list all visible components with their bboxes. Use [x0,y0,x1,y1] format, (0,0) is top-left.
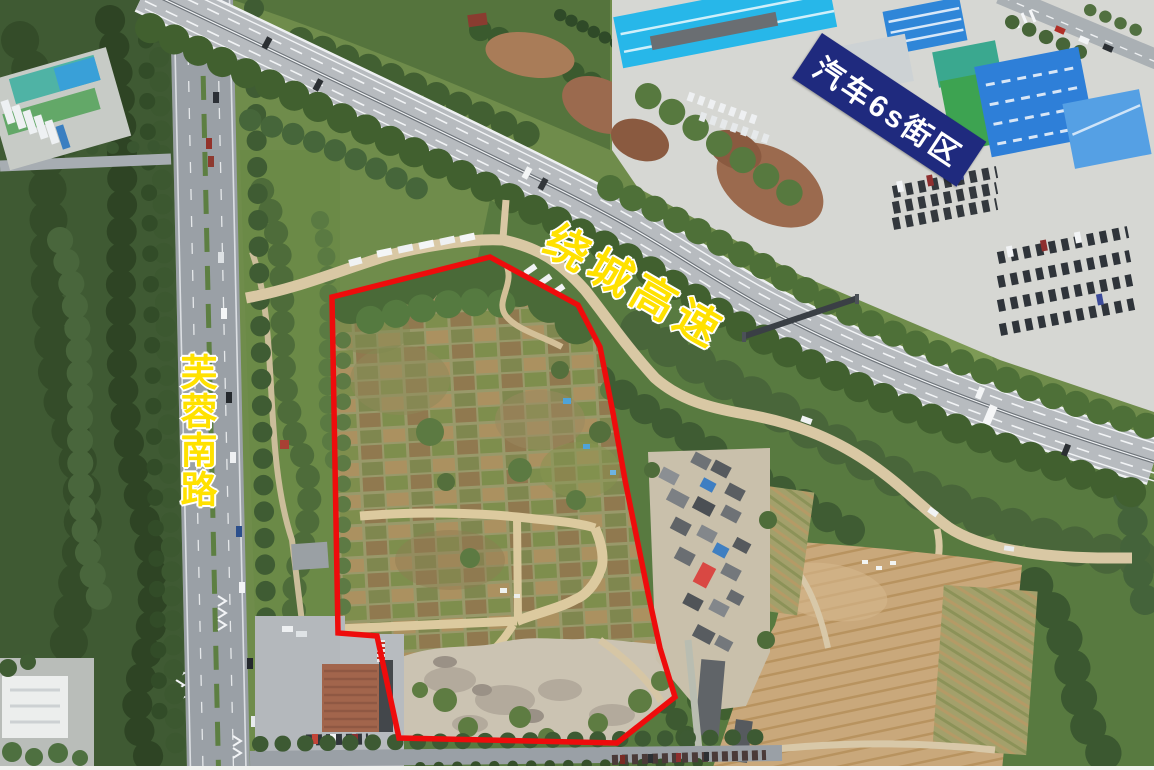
aerial-photo: 芙蓉南路 绕城高速 汽车6s街区 [0,0,1154,770]
furong-south-road-label: 芙蓉南路 [175,353,215,509]
pavilion [280,440,289,449]
photo-bottom-margin [0,766,1154,770]
garden-plots [932,585,1037,755]
aerial-scene [0,0,1154,770]
sports-court [291,542,329,570]
blue-tarp [563,398,571,404]
white-building [2,676,68,738]
